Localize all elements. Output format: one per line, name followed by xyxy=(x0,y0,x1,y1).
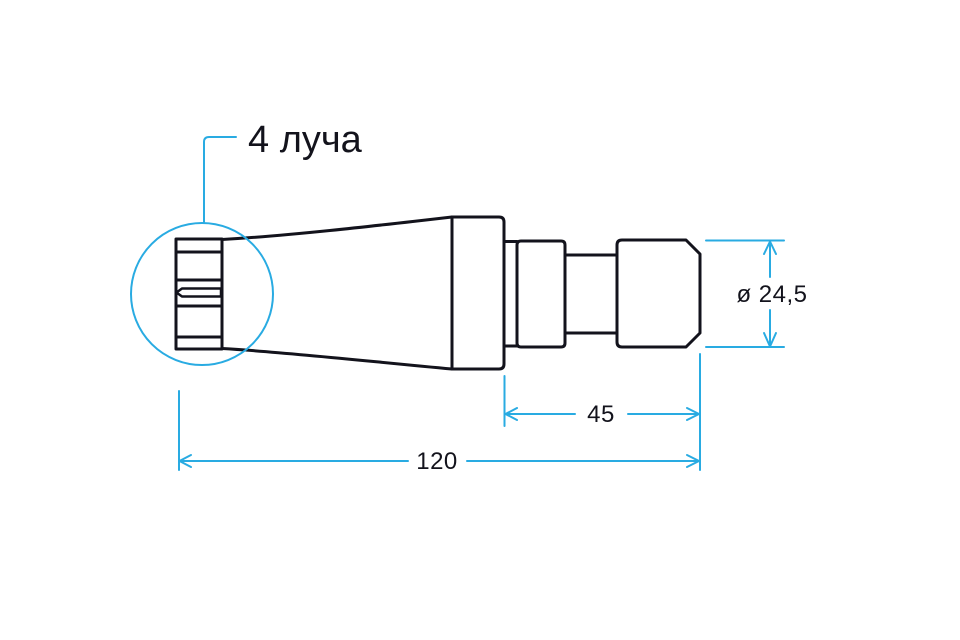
tip-outline xyxy=(176,239,222,349)
body-taper-bottom xyxy=(222,349,452,370)
shank-length-value: 45 xyxy=(587,401,615,428)
detail-circle xyxy=(131,223,273,365)
shank-collar-outline xyxy=(517,241,565,347)
tip-cross-slot xyxy=(177,289,222,297)
callout-leader-line xyxy=(204,137,236,222)
flange-outline xyxy=(452,217,504,369)
callout-label: 4 луча xyxy=(248,119,363,161)
total-length-value: 120 xyxy=(416,448,458,475)
label-group: 4 луча ø 24,5 45 120 xyxy=(248,119,808,475)
diameter-value: ø 24,5 xyxy=(736,281,807,308)
part-outline-group xyxy=(176,217,700,369)
technical-drawing-canvas: 4 луча ø 24,5 45 120 xyxy=(0,0,960,640)
body-taper-top xyxy=(222,217,452,240)
head-outline xyxy=(617,240,700,347)
technical-drawing-page: 4 луча ø 24,5 45 120 xyxy=(0,0,960,640)
annotation-group xyxy=(131,137,784,470)
